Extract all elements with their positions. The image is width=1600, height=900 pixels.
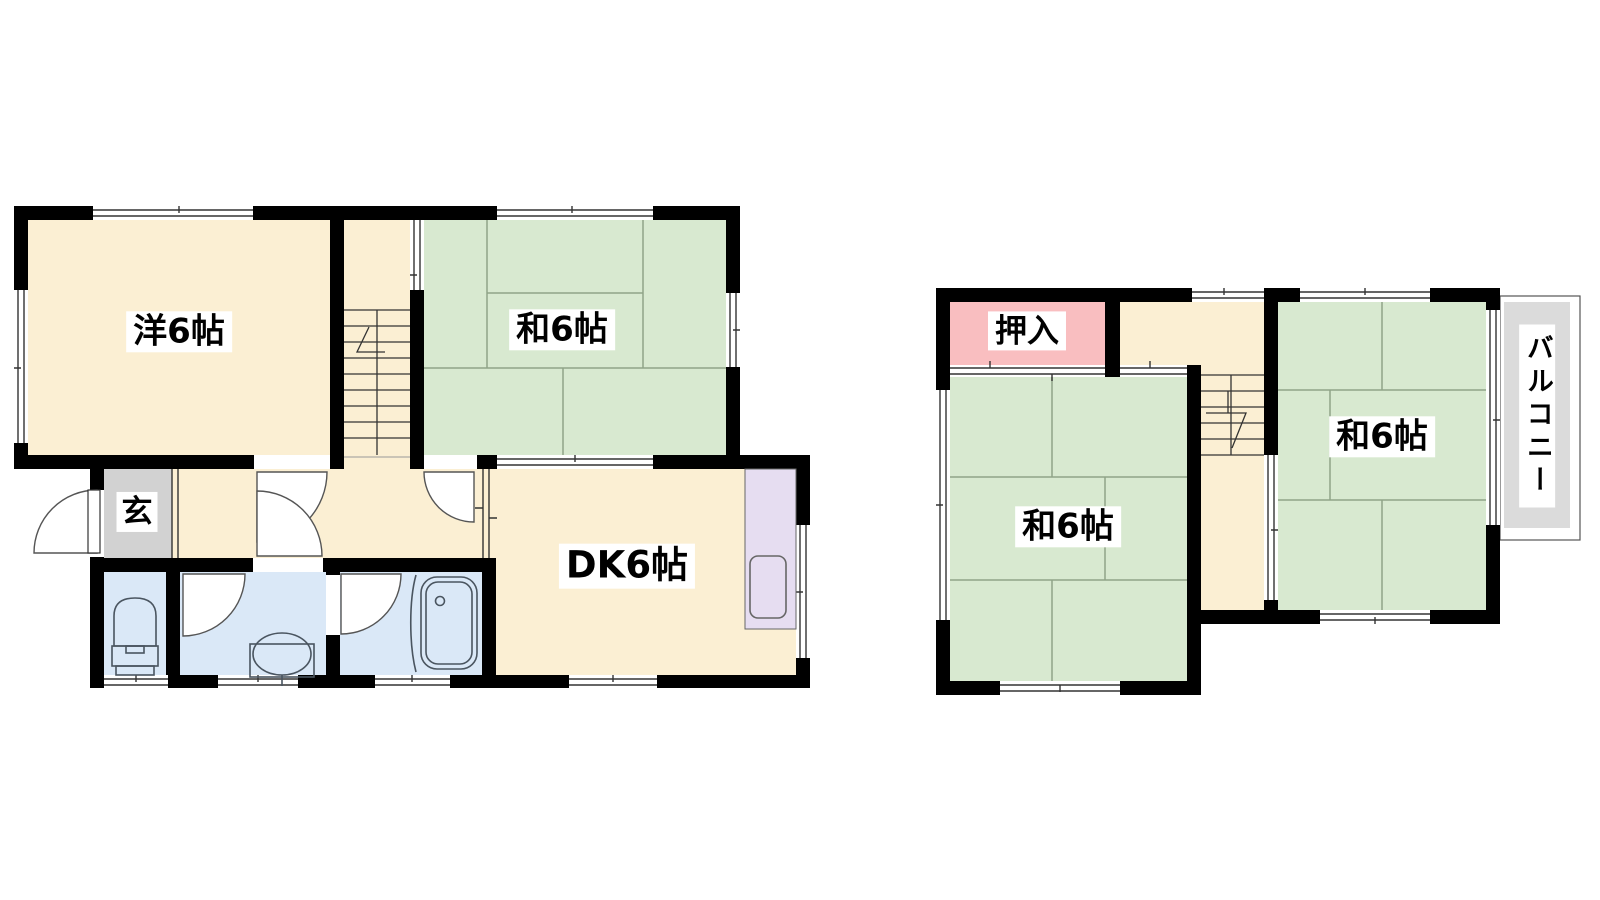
stairhall-floor2	[1198, 302, 1264, 610]
entrance-door-leaf	[88, 490, 100, 553]
label-room-japanese1f: 和6帖	[509, 309, 615, 350]
floorplan-canvas: 洋6帖 和6帖 DK6帖 玄 押入 和6帖 和6帖 バルコニー	[0, 0, 1600, 900]
label-room-japanese2f-right: 和6帖	[1329, 416, 1435, 457]
floor2-room-fills	[950, 302, 1486, 681]
label-room-dk: DK6帖	[559, 544, 695, 589]
label-entrance: 玄	[117, 492, 158, 532]
japanese1f-door-opening	[424, 455, 477, 469]
bath-door-opening	[326, 575, 340, 635]
label-room-western: 洋6帖	[126, 311, 232, 352]
western-door-opening	[254, 455, 330, 469]
label-room-japanese2f-left: 和6帖	[1015, 506, 1121, 547]
floor1-plan	[14, 206, 810, 688]
label-balcony: バルコニー	[1519, 325, 1555, 508]
washroom-door-opening	[253, 558, 323, 572]
kitchen-counter	[745, 469, 796, 629]
label-closet: 押入	[988, 311, 1066, 350]
